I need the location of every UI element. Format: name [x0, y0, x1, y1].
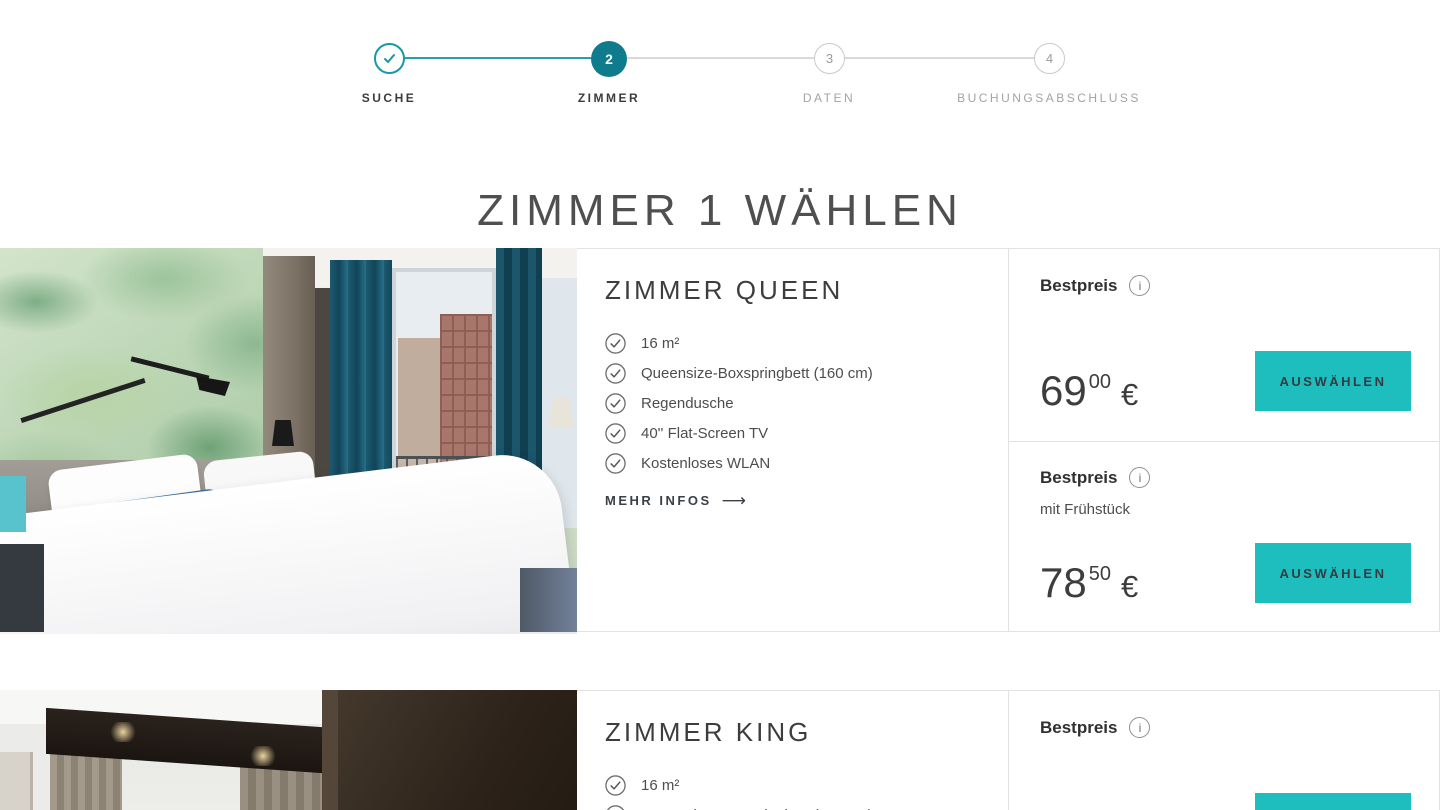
room-name: ZIMMER QUEEN [605, 275, 985, 306]
page-title: ZIMMER 1 WÄHLEN [0, 186, 1440, 236]
feature-text: Queensize-Boxspringbett (160 cm) [641, 807, 873, 810]
feature-list: 16 m² Queensize-Boxspringbett (160 cm) R… [605, 328, 985, 478]
feature-text: Queensize-Boxspringbett (160 cm) [641, 365, 873, 382]
room-photo-queen [0, 248, 577, 634]
offer-bestpreis: Bestpreis i AUSWÄHLEN [1008, 691, 1439, 810]
step-3-circle-daten: 3 [814, 43, 845, 74]
offer-bestpreis: Bestpreis i 6900€ AUSWÄHLEN [1008, 249, 1439, 441]
feature-item: Queensize-Boxspringbett (160 cm) [605, 800, 985, 810]
more-info-link[interactable]: MEHR INFOS ⟶ [605, 492, 746, 509]
room-details-king: ZIMMER KING 16 m² Queensize-Boxspringbet… [605, 691, 985, 810]
room-details-queen: ZIMMER QUEEN 16 m² Queensize-Boxspringbe… [605, 249, 985, 510]
more-info-label: MEHR INFOS [605, 493, 712, 508]
step-2-circle-zimmer[interactable]: 2 [591, 41, 627, 77]
auswaehlen-button[interactable]: AUSWÄHLEN [1255, 543, 1411, 603]
booking-stepper: 2 3 4 SUCHE ZIMMER DATEN BUCHUNGSABSCHLU… [0, 0, 1440, 120]
check-circle-icon [605, 333, 626, 354]
price-cents: 50 [1089, 563, 1111, 585]
offer-note: mit Frühstück [1040, 501, 1130, 518]
step-3-number: 3 [826, 51, 833, 66]
check-icon [382, 51, 397, 66]
check-circle-icon [605, 393, 626, 414]
step-2-number: 2 [605, 51, 613, 67]
info-icon[interactable]: i [1129, 467, 1150, 488]
offer-bestpreis-fruehstueck: Bestpreis i mit Frühstück 7850€ AUSWÄHLE… [1008, 441, 1439, 633]
step-4-circle-buchungsabschluss: 4 [1034, 43, 1065, 74]
offer-label: Bestpreis [1040, 468, 1117, 488]
feature-item: 16 m² [605, 770, 985, 800]
feature-item: 16 m² [605, 328, 985, 358]
check-circle-icon [605, 453, 626, 474]
price-currency: € [1121, 377, 1138, 412]
info-icon[interactable]: i [1129, 717, 1150, 738]
step-label-buchungsabschluss: BUCHUNGSABSCHLUSS [924, 91, 1174, 105]
info-icon[interactable]: i [1129, 275, 1150, 296]
feature-item: Queensize-Boxspringbett (160 cm) [605, 358, 985, 388]
step-label-zimmer[interactable]: ZIMMER [559, 91, 659, 105]
stepper-connector-done [405, 57, 591, 59]
stepper-connector-todo [627, 57, 814, 59]
feature-text: Kostenloses WLAN [641, 455, 770, 472]
offer-label: Bestpreis [1040, 276, 1117, 296]
feature-item: Kostenloses WLAN [605, 448, 985, 478]
room-card-queen: ZIMMER QUEEN 16 m² Queensize-Boxspringbe… [0, 248, 1440, 632]
step-label-suche[interactable]: SUCHE [339, 91, 439, 105]
auswaehlen-button[interactable]: AUSWÄHLEN [1255, 793, 1411, 810]
stepper-connector-todo [845, 57, 1034, 59]
room-name: ZIMMER KING [605, 717, 985, 748]
check-circle-icon [605, 363, 626, 384]
price-whole: 78 [1040, 559, 1087, 606]
check-circle-icon [605, 423, 626, 444]
auswaehlen-button[interactable]: AUSWÄHLEN [1255, 351, 1411, 411]
price-cents: 00 [1089, 371, 1111, 393]
step-4-number: 4 [1046, 51, 1053, 66]
feature-item: 40'' Flat-Screen TV [605, 418, 985, 448]
booking-page: 2 3 4 SUCHE ZIMMER DATEN BUCHUNGSABSCHLU… [0, 0, 1440, 810]
price-currency: € [1121, 569, 1138, 604]
step-label-daten: DATEN [779, 91, 879, 105]
room-card-king: ZIMMER KING 16 m² Queensize-Boxspringbet… [0, 690, 1440, 810]
check-circle-icon [605, 805, 626, 810]
feature-item: Regendusche [605, 388, 985, 418]
step-1-circle-suche[interactable] [374, 43, 405, 74]
feature-text: 16 m² [641, 777, 679, 794]
offer-label: Bestpreis [1040, 718, 1117, 738]
feature-text: Regendusche [641, 395, 734, 412]
offer-price: 7850€ [1040, 559, 1138, 607]
feature-text: 40'' Flat-Screen TV [641, 425, 768, 442]
feature-text: 16 m² [641, 335, 679, 352]
feature-list: 16 m² Queensize-Boxspringbett (160 cm) [605, 770, 985, 810]
price-whole: 69 [1040, 367, 1087, 414]
check-circle-icon [605, 775, 626, 796]
offer-price: 6900€ [1040, 367, 1138, 415]
arrow-right-icon: ⟶ [722, 492, 746, 509]
room-photo-king [0, 690, 577, 810]
